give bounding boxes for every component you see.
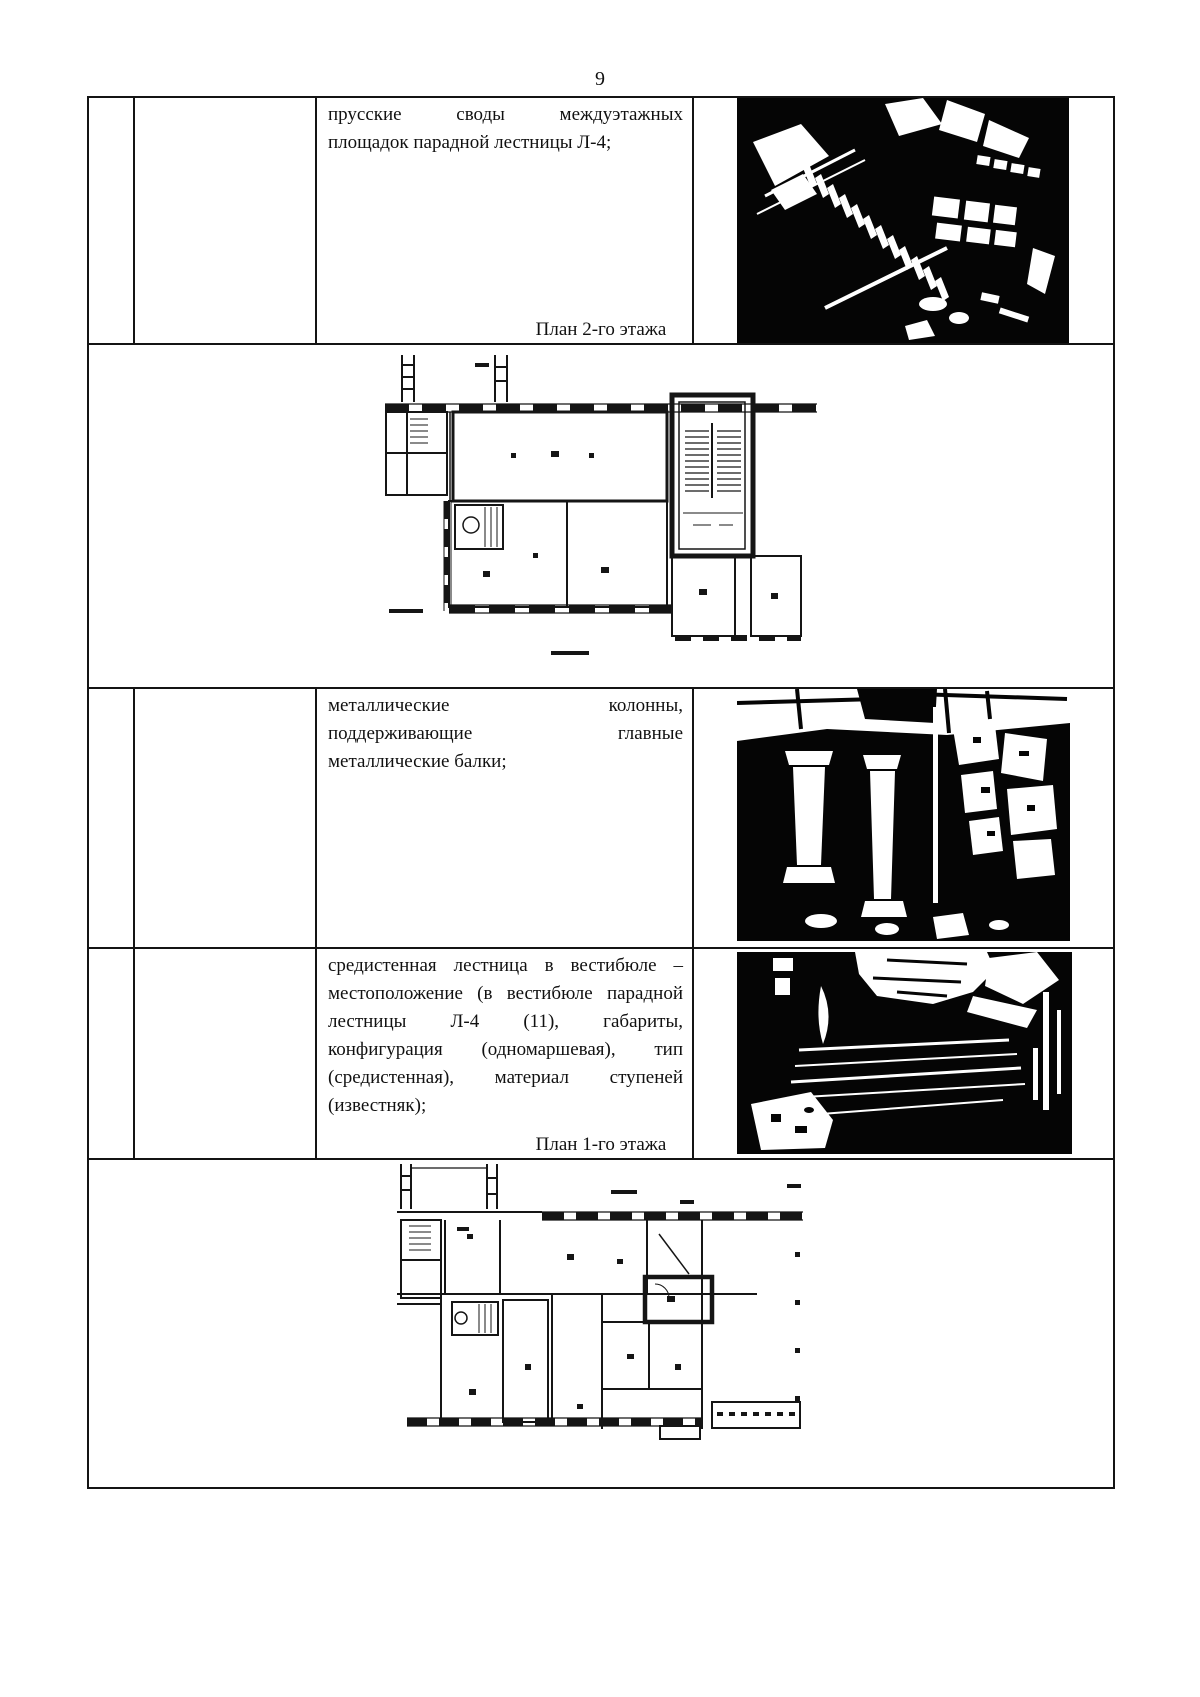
metal-columns-photo-image — [737, 689, 1070, 941]
description-cell: средистенная лестница в вестибюле –место… — [316, 948, 693, 1159]
text-line: металлические колонны, — [328, 692, 683, 720]
floor-plan-1-image — [397, 1164, 803, 1442]
empty-cell — [134, 688, 316, 948]
description-cell: металлические колонны,поддерживающие гла… — [316, 688, 693, 948]
empty-cell — [88, 688, 134, 948]
plan-2-caption: План 2-го этажа — [89, 319, 1113, 341]
empty-cell — [88, 948, 134, 1159]
text-line: лестницы Л-4 (11), габариты, — [328, 1008, 683, 1036]
empty-cell — [134, 97, 316, 344]
text-line: прусские своды междуэтажных — [328, 101, 683, 129]
table-row-vaults: прусские своды междуэтажныхплощадок пара… — [88, 97, 1114, 344]
table-row-plan1: План 1-го этажа — [88, 1159, 1114, 1488]
photo-cell — [693, 948, 1114, 1159]
plan1-cell: План 1-го этажа — [88, 1159, 1114, 1488]
vestibule-stair-photo-image — [737, 952, 1072, 1154]
table-row-plan2: План 2-го этажа — [88, 344, 1114, 688]
empty-cell — [134, 948, 316, 1159]
photo-cell — [693, 97, 1114, 344]
photo-cell — [693, 688, 1114, 948]
table-row-columns: металлические колонны,поддерживающие гла… — [88, 688, 1114, 948]
vaults-description-text: прусские своды междуэтажныхплощадок пара… — [317, 98, 692, 157]
text-line: поддерживающие главные — [328, 720, 683, 748]
plan2-cell: План 2-го этажа — [88, 344, 1114, 688]
description-cell: прусские своды междуэтажныхплощадок пара… — [316, 97, 693, 344]
vestibule-stair-description-text: средистенная лестница в вестибюле –место… — [317, 949, 692, 1120]
floor-plan-2-image — [383, 353, 817, 659]
text-line: площадок парадной лестницы Л-4; — [328, 129, 683, 157]
document-page: 9 прусские своды междуэтажныхплощадок па… — [0, 0, 1200, 1697]
page-number: 9 — [87, 68, 1113, 91]
columns-description-text: металлические колонны,поддерживающие гла… — [317, 689, 692, 776]
text-line: конфигурация (одномаршевая), тип — [328, 1036, 683, 1064]
empty-cell — [88, 97, 134, 344]
text-line: местоположение (в вестибюле парадной — [328, 980, 683, 1008]
table-row-vestibule-stair: средистенная лестница в вестибюле –место… — [88, 948, 1114, 1159]
plan-1-caption: План 1-го этажа — [89, 1134, 1113, 1156]
text-line: (известняк); — [328, 1092, 683, 1120]
text-line: металлические балки; — [328, 748, 683, 776]
stairwell-top-view-photo-image — [737, 98, 1069, 343]
text-line: (средистенная), материал ступеней — [328, 1064, 683, 1092]
content-table: прусские своды междуэтажныхплощадок пара… — [87, 96, 1115, 1489]
text-line: средистенная лестница в вестибюле – — [328, 952, 683, 980]
